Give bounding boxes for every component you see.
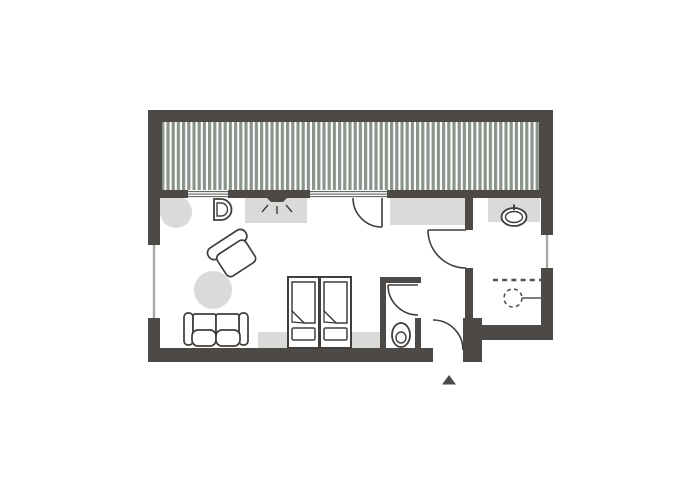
wardrobe-counter bbox=[390, 198, 465, 225]
top-wall-segment-c bbox=[387, 190, 553, 198]
bathroom-door bbox=[428, 230, 466, 268]
deck-left-wall bbox=[148, 110, 162, 190]
deck-right-wall bbox=[539, 110, 553, 190]
bottom-wall bbox=[148, 348, 433, 362]
round-rug bbox=[194, 271, 232, 309]
toilet bbox=[392, 323, 410, 347]
bathroom-left-wall-upper bbox=[465, 198, 473, 230]
shower-markings bbox=[493, 280, 544, 307]
wc-left-wall bbox=[380, 277, 386, 348]
kitchen-corner-counter-round bbox=[160, 196, 192, 228]
deck-door bbox=[353, 198, 382, 227]
entrance-marker bbox=[442, 375, 456, 385]
floor-plan-svg bbox=[0, 0, 700, 500]
terrace-deck bbox=[162, 118, 539, 190]
pillow-left bbox=[292, 328, 315, 340]
deck-top-wall bbox=[148, 110, 553, 122]
right-wall-upper bbox=[541, 198, 553, 235]
left-wall-upper bbox=[148, 190, 160, 245]
shower-symbol bbox=[504, 289, 522, 307]
sofa bbox=[184, 313, 248, 346]
sofa-seat-cushion bbox=[216, 330, 240, 346]
double-bed bbox=[288, 277, 351, 348]
bathroom-left-wall-lower bbox=[465, 268, 473, 325]
kitchen-sink-inner bbox=[217, 203, 228, 216]
kitchen-sink bbox=[214, 199, 232, 220]
wc-door bbox=[388, 285, 418, 315]
wc-right-wall-lower bbox=[415, 318, 421, 348]
pillow-right bbox=[324, 328, 347, 340]
wc-top-wall bbox=[380, 277, 421, 283]
entry-door bbox=[433, 320, 463, 350]
sofa-seat-cushion bbox=[192, 330, 216, 346]
washbasin-inner bbox=[506, 212, 523, 223]
floor-plan-canvas bbox=[0, 0, 700, 500]
toilet-bowl bbox=[396, 332, 406, 343]
